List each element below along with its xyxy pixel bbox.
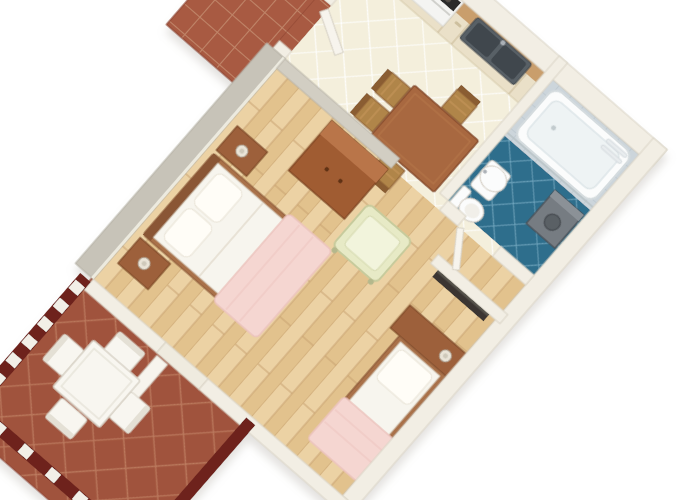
floor-plan-image <box>0 0 700 500</box>
floor-plan-canvas <box>0 0 700 500</box>
apartment <box>0 0 692 500</box>
